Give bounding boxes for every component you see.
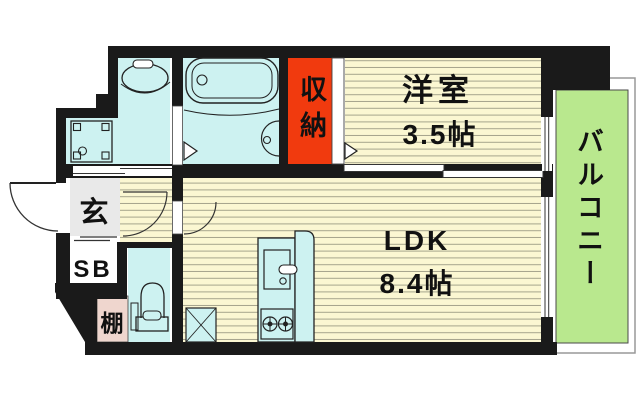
kitchen-counter (258, 231, 314, 342)
wall-right-upper (541, 56, 553, 117)
label-entrance: 玄 (79, 195, 108, 229)
wall-top-right-block (553, 46, 610, 90)
label-storage: 収納 (296, 75, 327, 147)
label-western-size: 3.5帖 (403, 119, 478, 150)
kitchen-faucet (279, 265, 297, 274)
entrance-step-lines (74, 237, 117, 241)
wall-right-lower (541, 317, 553, 343)
label-shoe-box: SB (73, 256, 112, 283)
label-western-room: 洋室 (402, 73, 474, 108)
label-balcony: バルコニー (573, 127, 603, 292)
refrigerator-space (186, 308, 216, 342)
room-ldk (183, 178, 541, 342)
entrance-door-gap (56, 183, 66, 233)
room-hallway (120, 178, 172, 242)
wall-bottom (85, 342, 557, 355)
wall-center-c (172, 234, 183, 342)
window-western (542, 117, 552, 171)
label-ldk-size: 8.4帖 (380, 268, 455, 299)
floor-plan-drawing: 洋室 3.5帖 LDK 8.4帖 収納 バルコニー 玄 SB 棚 (0, 0, 640, 400)
closet-door (332, 58, 344, 164)
wall-toilet-top (117, 242, 172, 248)
label-ldk: LDK (384, 225, 451, 256)
sliding-door-panel-2 (443, 171, 543, 178)
label-shelf: 棚 (101, 310, 124, 336)
wall-top (108, 46, 610, 58)
window-ldk (542, 197, 552, 317)
wall-center-a (172, 46, 183, 106)
floor-plan-page: 洋室 3.5帖 LDK 8.4帖 収納 バルコニー 玄 SB 棚 (0, 0, 640, 400)
washroom-sliding-door (73, 166, 172, 176)
bathroom-door (173, 106, 183, 165)
wall-bath-storage (279, 58, 288, 164)
ldk-door-leaf (173, 201, 183, 234)
entrance-door-arc (10, 183, 58, 231)
sliding-door-panel-1 (344, 165, 444, 172)
